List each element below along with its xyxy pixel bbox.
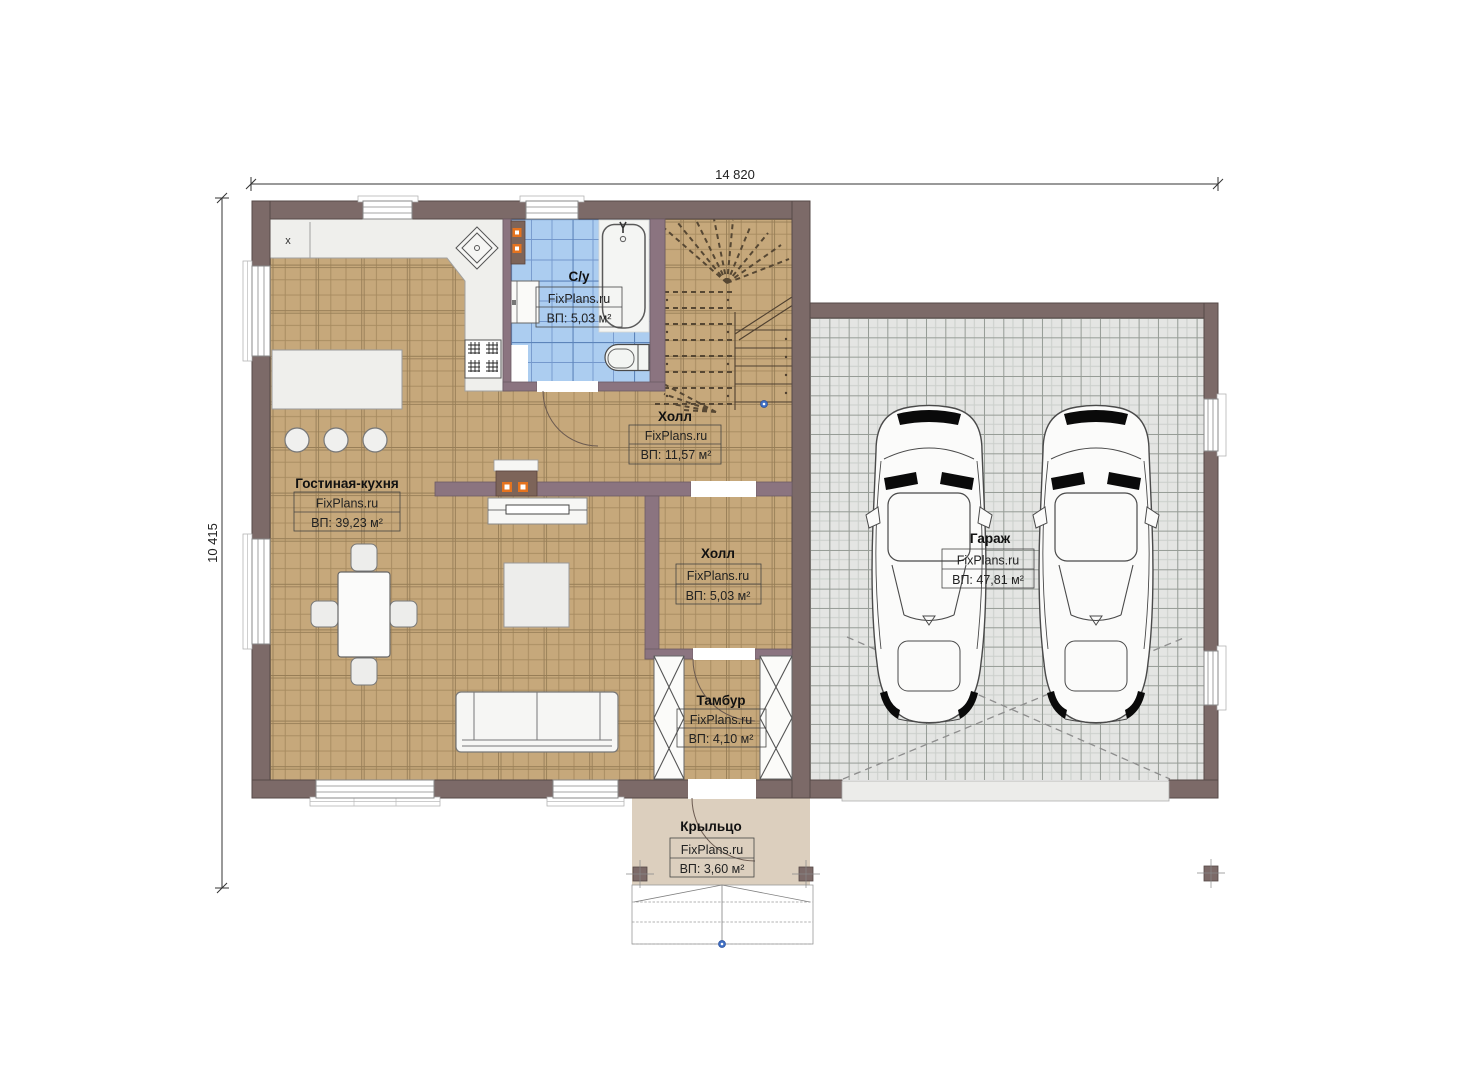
svg-text:С/у: С/у [568,269,590,284]
svg-text:FixPlans.ru: FixPlans.ru [690,713,753,727]
svg-text:ВП: 4,10 м²: ВП: 4,10 м² [689,732,754,746]
svg-text:FixPlans.ru: FixPlans.ru [645,429,708,443]
svg-text:Тамбур: Тамбур [697,693,746,708]
svg-text:ВП: 11,57 м²: ВП: 11,57 м² [641,448,712,462]
svg-text:Гостиная-кухня: Гостиная-кухня [295,476,398,491]
svg-text:Холл: Холл [701,546,735,561]
svg-text:Холл: Холл [658,409,692,424]
svg-text:FixPlans.ru: FixPlans.ru [957,554,1020,568]
svg-text:ВП: 5,03 м²: ВП: 5,03 м² [547,312,612,326]
svg-text:FixPlans.ru: FixPlans.ru [548,292,611,306]
svg-text:14 820: 14 820 [715,167,755,182]
svg-text:ВП: 5,03 м²: ВП: 5,03 м² [686,589,751,603]
svg-text:x: x [285,235,291,247]
svg-text:ВП: 39,23 м²: ВП: 39,23 м² [311,516,383,530]
svg-text:ВП: 47,81 м²: ВП: 47,81 м² [952,573,1024,587]
svg-text:Гараж: Гараж [970,531,1011,546]
svg-text:Крыльцо: Крыльцо [680,819,741,834]
svg-text:FixPlans.ru: FixPlans.ru [316,497,379,511]
svg-text:10 415: 10 415 [205,523,220,563]
svg-text:FixPlans.ru: FixPlans.ru [687,569,750,583]
svg-text:FixPlans.ru: FixPlans.ru [681,843,744,857]
svg-text:ВП: 3,60 м²: ВП: 3,60 м² [680,862,745,876]
